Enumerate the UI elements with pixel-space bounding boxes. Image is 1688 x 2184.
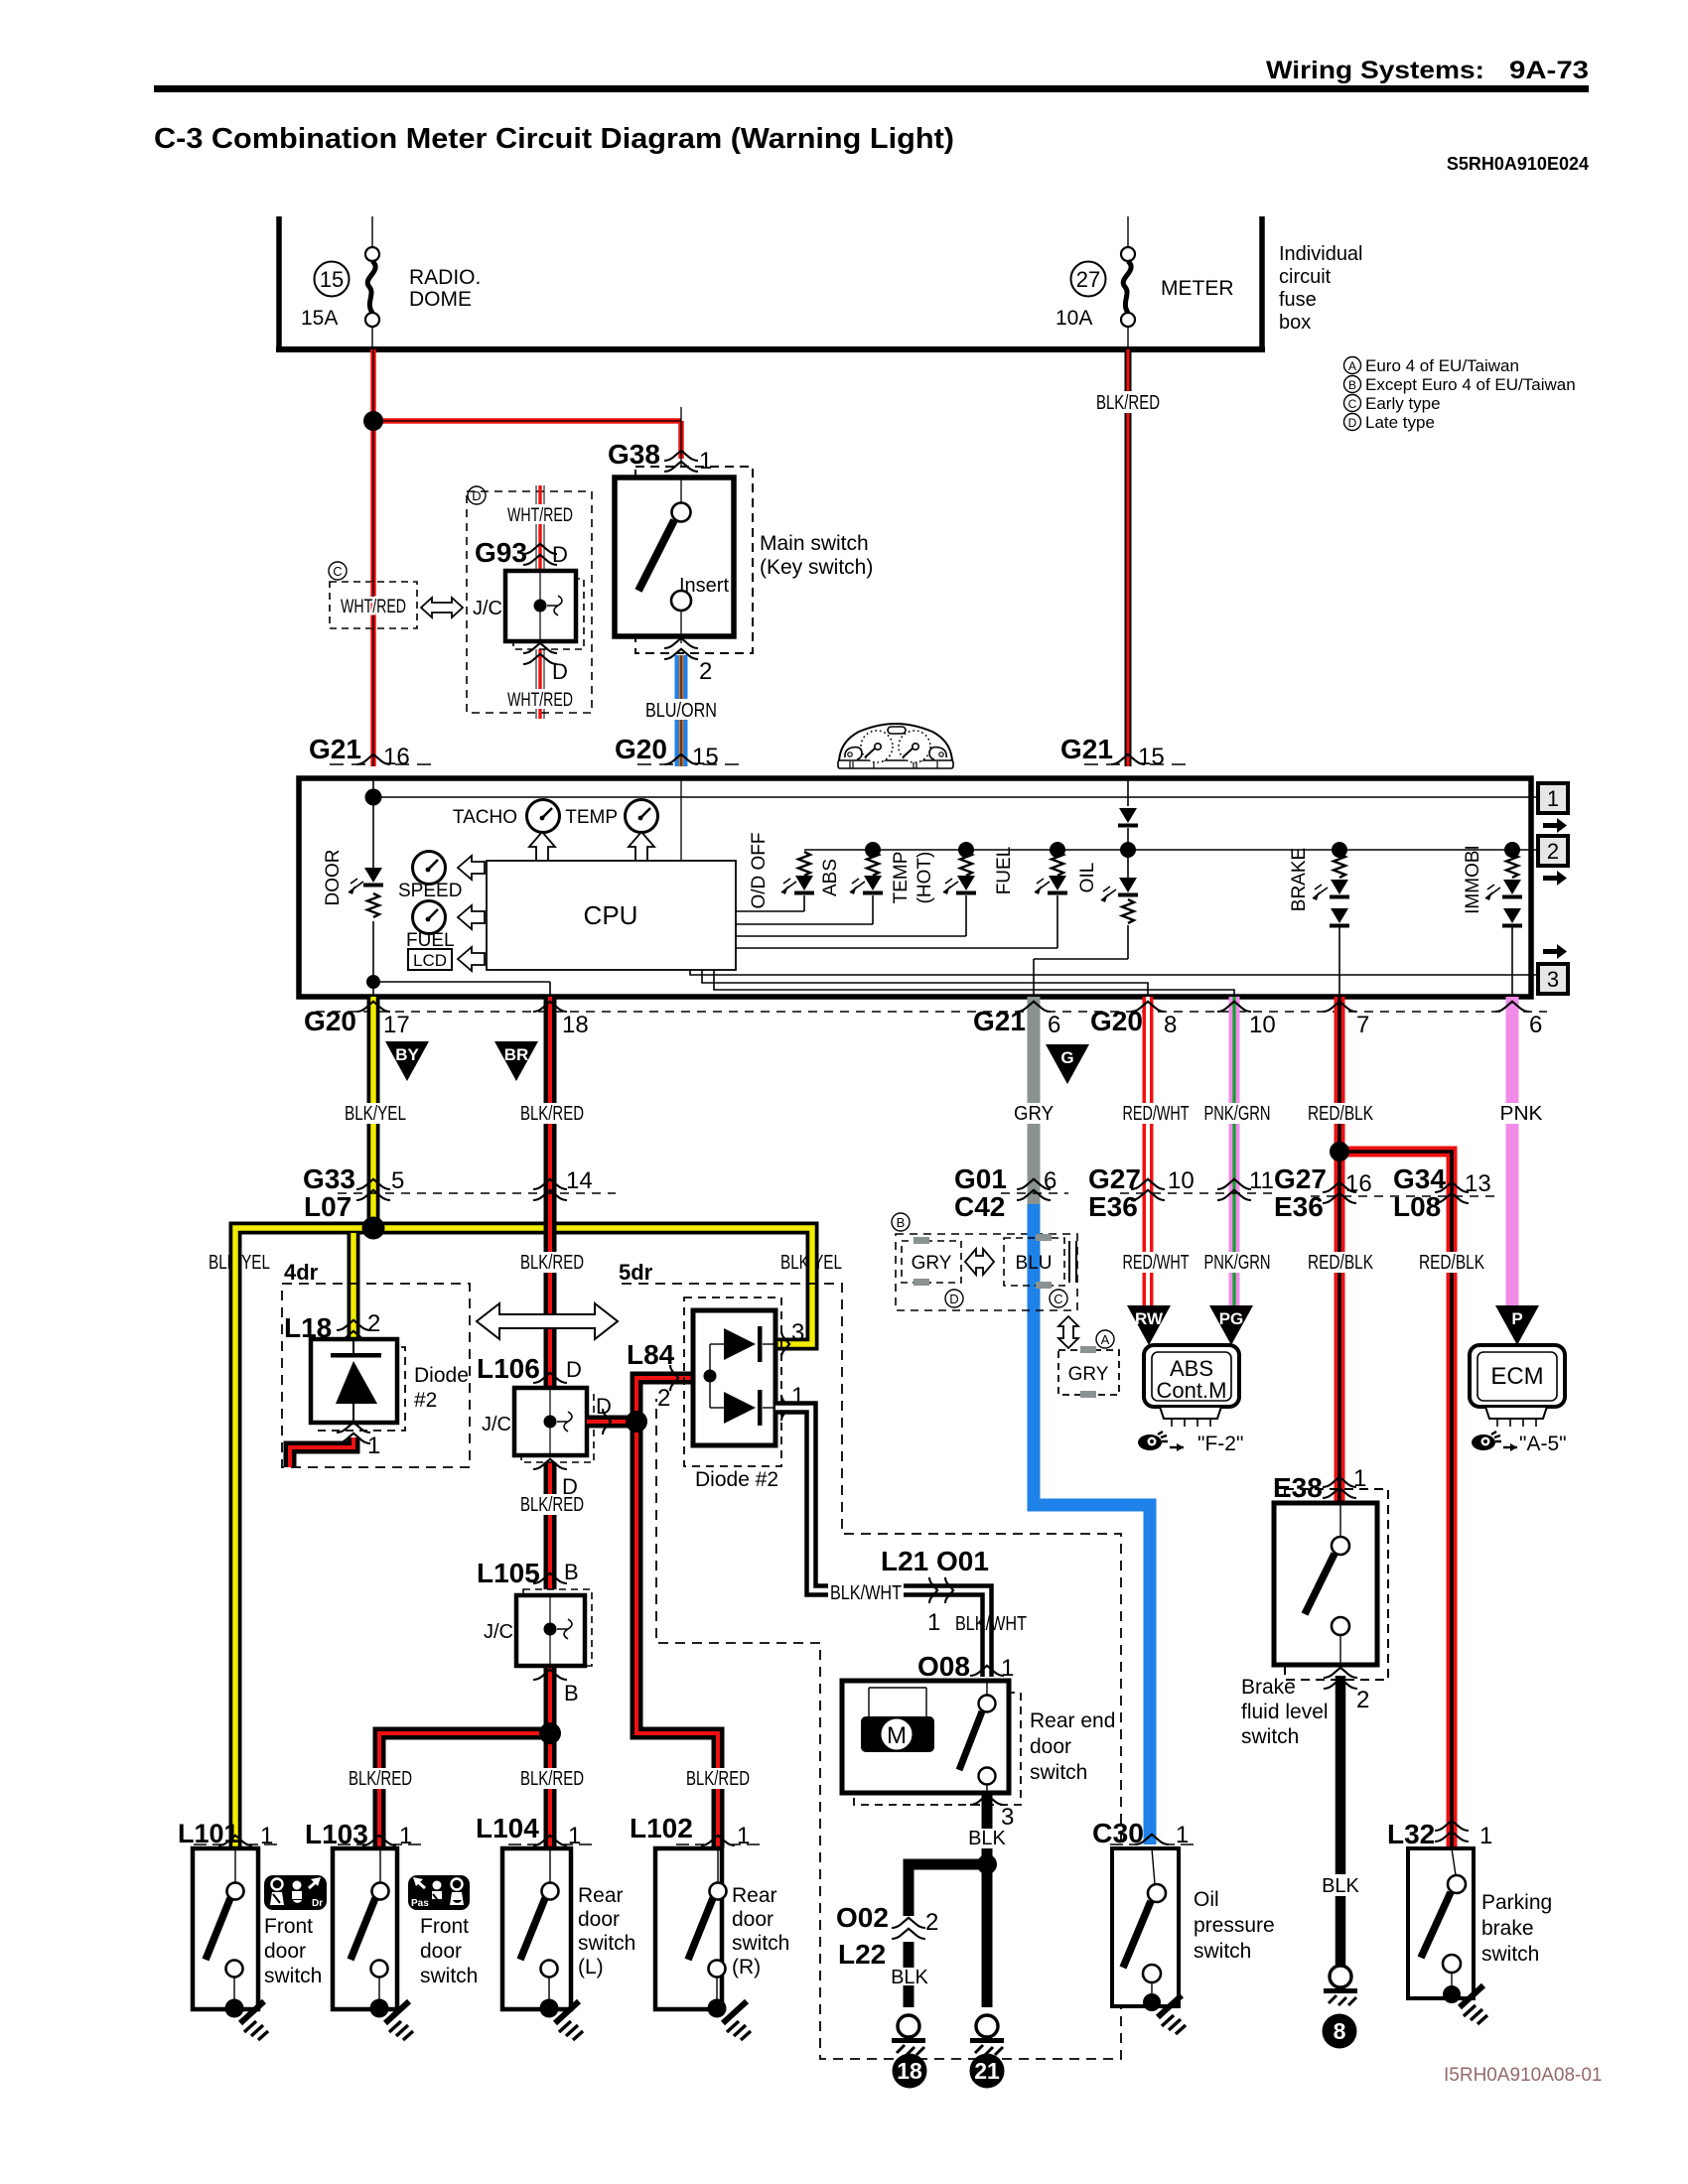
svg-text:L104: L104 [476,1813,539,1843]
svg-text:5: 5 [391,1167,404,1194]
svg-text:18: 18 [897,2058,922,2084]
svg-text:Pas: Pas [411,1898,429,1909]
svg-text:C: C [1348,397,1357,411]
svg-text:BLU/ORN: BLU/ORN [645,700,717,722]
svg-text:C: C [1054,1292,1062,1306]
svg-text:6: 6 [1529,1012,1542,1038]
svg-text:G21: G21 [973,1006,1026,1036]
svg-text:4dr: 4dr [284,1260,319,1285]
svg-text:1: 1 [399,1823,412,1849]
svg-text:C42: C42 [954,1191,1005,1222]
svg-text:switch: switch [1481,1943,1539,1966]
svg-text:15: 15 [692,744,719,770]
svg-text:WHT/RED: WHT/RED [341,597,406,617]
svg-text:LCD: LCD [413,951,447,970]
svg-text:door: door [732,1908,774,1931]
svg-text:G20: G20 [304,1006,356,1036]
svg-text:BR: BR [504,1045,529,1064]
svg-text:S5RH0A910E024: S5RH0A910E024 [1447,154,1589,174]
svg-text:GRY: GRY [1014,1103,1054,1125]
svg-text:Rear: Rear [732,1884,777,1907]
svg-text:Rear end: Rear end [1030,1709,1115,1732]
svg-text:8: 8 [1164,1012,1177,1038]
svg-text:(L): (L) [578,1956,604,1979]
svg-text:door: door [578,1908,620,1931]
svg-text:L101: L101 [178,1819,239,1848]
svg-text:B: B [897,1215,906,1230]
svg-text:G33: G33 [303,1163,355,1194]
svg-text:PG: PG [1219,1309,1244,1328]
svg-text:pressure: pressure [1194,1914,1275,1937]
svg-text:Front: Front [264,1915,313,1938]
svg-text:G34: G34 [1393,1163,1446,1194]
svg-text:ABS: ABS [820,859,841,896]
svg-text:6: 6 [1048,1012,1060,1038]
svg-text:BRAKE: BRAKE [1289,848,1310,911]
svg-text:WHT/RED: WHT/RED [507,690,573,711]
svg-text:O08: O08 [917,1651,970,1682]
svg-text:L102: L102 [630,1813,693,1843]
svg-text:BLU: BLU [1016,1253,1053,1274]
svg-text:J/C: J/C [484,1621,513,1643]
svg-text:13: 13 [1465,1170,1491,1197]
svg-text:RW: RW [1135,1309,1164,1328]
svg-text:METER: METER [1161,277,1234,300]
svg-text:E38: E38 [1273,1472,1323,1503]
svg-text:B: B [564,1681,579,1706]
svg-text:Early type: Early type [1365,394,1441,413]
svg-text:(HOT): (HOT) [914,852,935,904]
svg-text:11: 11 [1249,1167,1274,1194]
svg-text:1: 1 [1479,1823,1492,1849]
svg-text:Insert: Insert [679,575,729,597]
svg-text:fuse: fuse [1279,289,1317,311]
svg-text:RED/WHT: RED/WHT [1123,1252,1190,1274]
svg-text:8: 8 [1334,2018,1346,2044]
svg-text:16: 16 [1345,1170,1372,1197]
svg-text:BLK/WHT: BLK/WHT [955,1613,1027,1635]
svg-text:1: 1 [568,1823,581,1849]
svg-text:G93: G93 [475,537,527,568]
svg-text:2: 2 [367,1310,380,1337]
svg-text:L32: L32 [1387,1819,1435,1849]
svg-text:B: B [564,1560,579,1584]
svg-text:switch: switch [1241,1725,1299,1748]
svg-text:BLK/YEL: BLK/YEL [345,1103,406,1125]
svg-text:9A-73: 9A-73 [1509,57,1589,84]
svg-text:2: 2 [657,1385,670,1412]
svg-text:L103: L103 [305,1819,368,1849]
svg-text:TEMP: TEMP [565,807,618,828]
svg-text:Diode: Diode [414,1364,469,1387]
svg-text:door: door [1030,1735,1071,1758]
svg-text:circuit: circuit [1279,266,1332,288]
svg-text:1: 1 [1176,1822,1189,1848]
svg-text:door: door [264,1940,306,1963]
svg-text:switch: switch [578,1932,635,1955]
svg-text:Late type: Late type [1365,413,1435,432]
svg-text:G21: G21 [309,734,361,764]
svg-text:switch: switch [1194,1940,1251,1963]
svg-text:(R): (R) [732,1956,761,1979]
svg-text:Cont.M: Cont.M [1157,1378,1227,1403]
svg-text:18: 18 [562,1012,589,1038]
svg-text:RED/WHT: RED/WHT [1123,1103,1190,1125]
svg-text:14: 14 [566,1167,593,1194]
svg-text:BLK: BLK [1322,1875,1359,1897]
svg-text:PNK: PNK [1500,1103,1544,1125]
svg-text:BLK: BLK [891,1967,928,1988]
svg-text:door: door [420,1940,462,1963]
svg-text:J/C: J/C [473,598,502,619]
svg-text:C: C [333,564,342,579]
svg-text:IMMOBI: IMMOBI [1463,845,1483,914]
svg-text:10: 10 [1249,1012,1276,1038]
svg-text:D: D [552,659,568,684]
svg-text:D: D [596,1394,612,1419]
svg-text:5dr: 5dr [619,1260,653,1285]
svg-text:1: 1 [1001,1655,1014,1682]
svg-text:1: 1 [1547,786,1559,811]
svg-text:Wiring Systems:: Wiring Systems: [1266,57,1484,84]
svg-text:DOOR: DOOR [323,850,344,906]
svg-text:27: 27 [1076,267,1100,292]
svg-text:BLK/RED: BLK/RED [1096,392,1160,414]
svg-text:B: B [1348,378,1356,392]
svg-text:RED/BLK: RED/BLK [1308,1103,1374,1125]
svg-text:1: 1 [737,1823,750,1849]
svg-text:"F-2": "F-2" [1197,1433,1243,1455]
svg-text:17: 17 [383,1012,410,1038]
svg-text:G27: G27 [1274,1163,1327,1194]
svg-text:RADIO.: RADIO. [409,266,481,289]
svg-text:1: 1 [927,1609,940,1636]
svg-text:Diode #2: Diode #2 [695,1468,778,1491]
svg-text:1: 1 [367,1433,380,1459]
svg-text:BY: BY [395,1045,419,1064]
svg-text:box: box [1279,312,1311,334]
svg-text:G01: G01 [954,1163,1007,1194]
svg-text:1: 1 [699,448,712,475]
svg-text:FUEL: FUEL [406,930,455,951]
svg-text:TEMP: TEMP [891,852,912,904]
svg-text:TACHO: TACHO [453,807,517,828]
svg-text:Except Euro 4 of EU/Taiwan: Except Euro 4 of EU/Taiwan [1365,375,1576,394]
svg-text:3: 3 [1547,967,1559,992]
svg-text:Brake: Brake [1241,1676,1296,1699]
svg-text:D: D [566,1357,582,1382]
svg-text:D: D [949,1292,958,1306]
svg-text:3: 3 [1001,1804,1014,1831]
svg-text:FUEL: FUEL [994,847,1015,895]
svg-text:L84: L84 [627,1339,675,1370]
svg-text:DOME: DOME [409,288,472,311]
svg-text:RED/BLK: RED/BLK [1419,1252,1485,1274]
svg-text:D: D [1348,416,1357,430]
svg-text:GRY: GRY [912,1253,952,1274]
svg-text:L105: L105 [477,1558,540,1588]
svg-text:PNK/GRN: PNK/GRN [1204,1103,1271,1125]
svg-text:P: P [1511,1309,1522,1328]
svg-text:15: 15 [320,267,344,292]
svg-text:CPU: CPU [584,900,638,930]
svg-text:switch: switch [1030,1761,1087,1784]
svg-text:L106: L106 [477,1353,540,1384]
svg-text:switch: switch [264,1965,322,1987]
svg-text:BLK/RED: BLK/RED [520,1768,584,1790]
svg-text:J/C: J/C [482,1414,511,1435]
svg-text:16: 16 [383,744,410,770]
svg-text:PNK/GRN: PNK/GRN [1204,1252,1271,1274]
svg-text:15: 15 [1138,744,1165,770]
svg-text:Main switch: Main switch [760,532,869,555]
svg-text:#2: #2 [414,1389,437,1412]
svg-text:Euro 4 of EU/Taiwan: Euro 4 of EU/Taiwan [1365,356,1519,375]
svg-text:BLK: BLK [968,1828,1006,1849]
svg-text:BLK/RED: BLK/RED [520,1252,584,1274]
svg-text:Dr: Dr [312,1898,323,1909]
svg-text:switch: switch [420,1965,478,1987]
svg-text:2: 2 [1356,1687,1369,1713]
svg-text:3: 3 [791,1319,804,1346]
svg-text:L08: L08 [1393,1191,1441,1222]
svg-text:M: M [887,1722,907,1749]
svg-text:L21 O01: L21 O01 [881,1546,989,1576]
svg-text:BLK/RED: BLK/RED [349,1768,412,1790]
svg-text:SPEED: SPEED [398,881,462,901]
svg-text:brake: brake [1481,1917,1534,1940]
svg-text:Oil: Oil [1194,1888,1219,1911]
svg-text:G20: G20 [615,734,667,764]
svg-text:2: 2 [925,1909,938,1936]
svg-text:GRY: GRY [1068,1364,1109,1385]
svg-text:G38: G38 [608,439,660,470]
svg-text:BLK/RED: BLK/RED [686,1768,750,1790]
svg-text:A: A [1101,1332,1110,1347]
svg-text:21: 21 [974,2058,1000,2084]
svg-text:2: 2 [1547,839,1559,864]
svg-text:Rear: Rear [578,1884,624,1907]
svg-text:G: G [1060,1048,1073,1067]
svg-text:C-3 Combination Meter Circuit: C-3 Combination Meter Circuit Diagram (W… [154,123,954,155]
svg-text:E36: E36 [1274,1191,1324,1222]
svg-text:Individual: Individual [1279,243,1363,265]
svg-text:7: 7 [1356,1012,1369,1038]
svg-text:A: A [1348,359,1356,373]
svg-text:Parking: Parking [1481,1891,1552,1914]
svg-text:1: 1 [260,1823,273,1849]
svg-text:1: 1 [1353,1465,1366,1492]
svg-text:Front: Front [420,1915,469,1938]
svg-text:BLK/RED: BLK/RED [520,1494,584,1516]
svg-text:15A: 15A [301,307,338,330]
svg-text:ECM: ECM [1490,1363,1543,1390]
svg-text:WHT/RED: WHT/RED [507,505,573,526]
svg-text:G21: G21 [1060,734,1113,764]
svg-text:I5RH0A910A08-01: I5RH0A910A08-01 [1444,2065,1603,2086]
svg-text:BLK/RED: BLK/RED [520,1103,584,1125]
svg-text:BLK/WHT: BLK/WHT [830,1582,902,1604]
svg-text:fluid level: fluid level [1241,1701,1329,1723]
svg-text:O02: O02 [836,1902,889,1933]
svg-text:L22: L22 [838,1939,886,1970]
svg-text:"A-5": "A-5" [1519,1433,1567,1455]
svg-text:10A: 10A [1055,307,1092,330]
svg-text:L07: L07 [304,1191,352,1222]
svg-text:RED/BLK: RED/BLK [1308,1252,1374,1274]
svg-text:OIL: OIL [1077,863,1098,893]
svg-text:O/D OFF: O/D OFF [749,832,770,908]
svg-text:(Key switch): (Key switch) [760,556,873,579]
svg-text:2: 2 [699,658,712,685]
svg-text:10: 10 [1168,1167,1195,1194]
svg-text:switch: switch [732,1932,789,1955]
svg-text:E36: E36 [1088,1191,1138,1222]
